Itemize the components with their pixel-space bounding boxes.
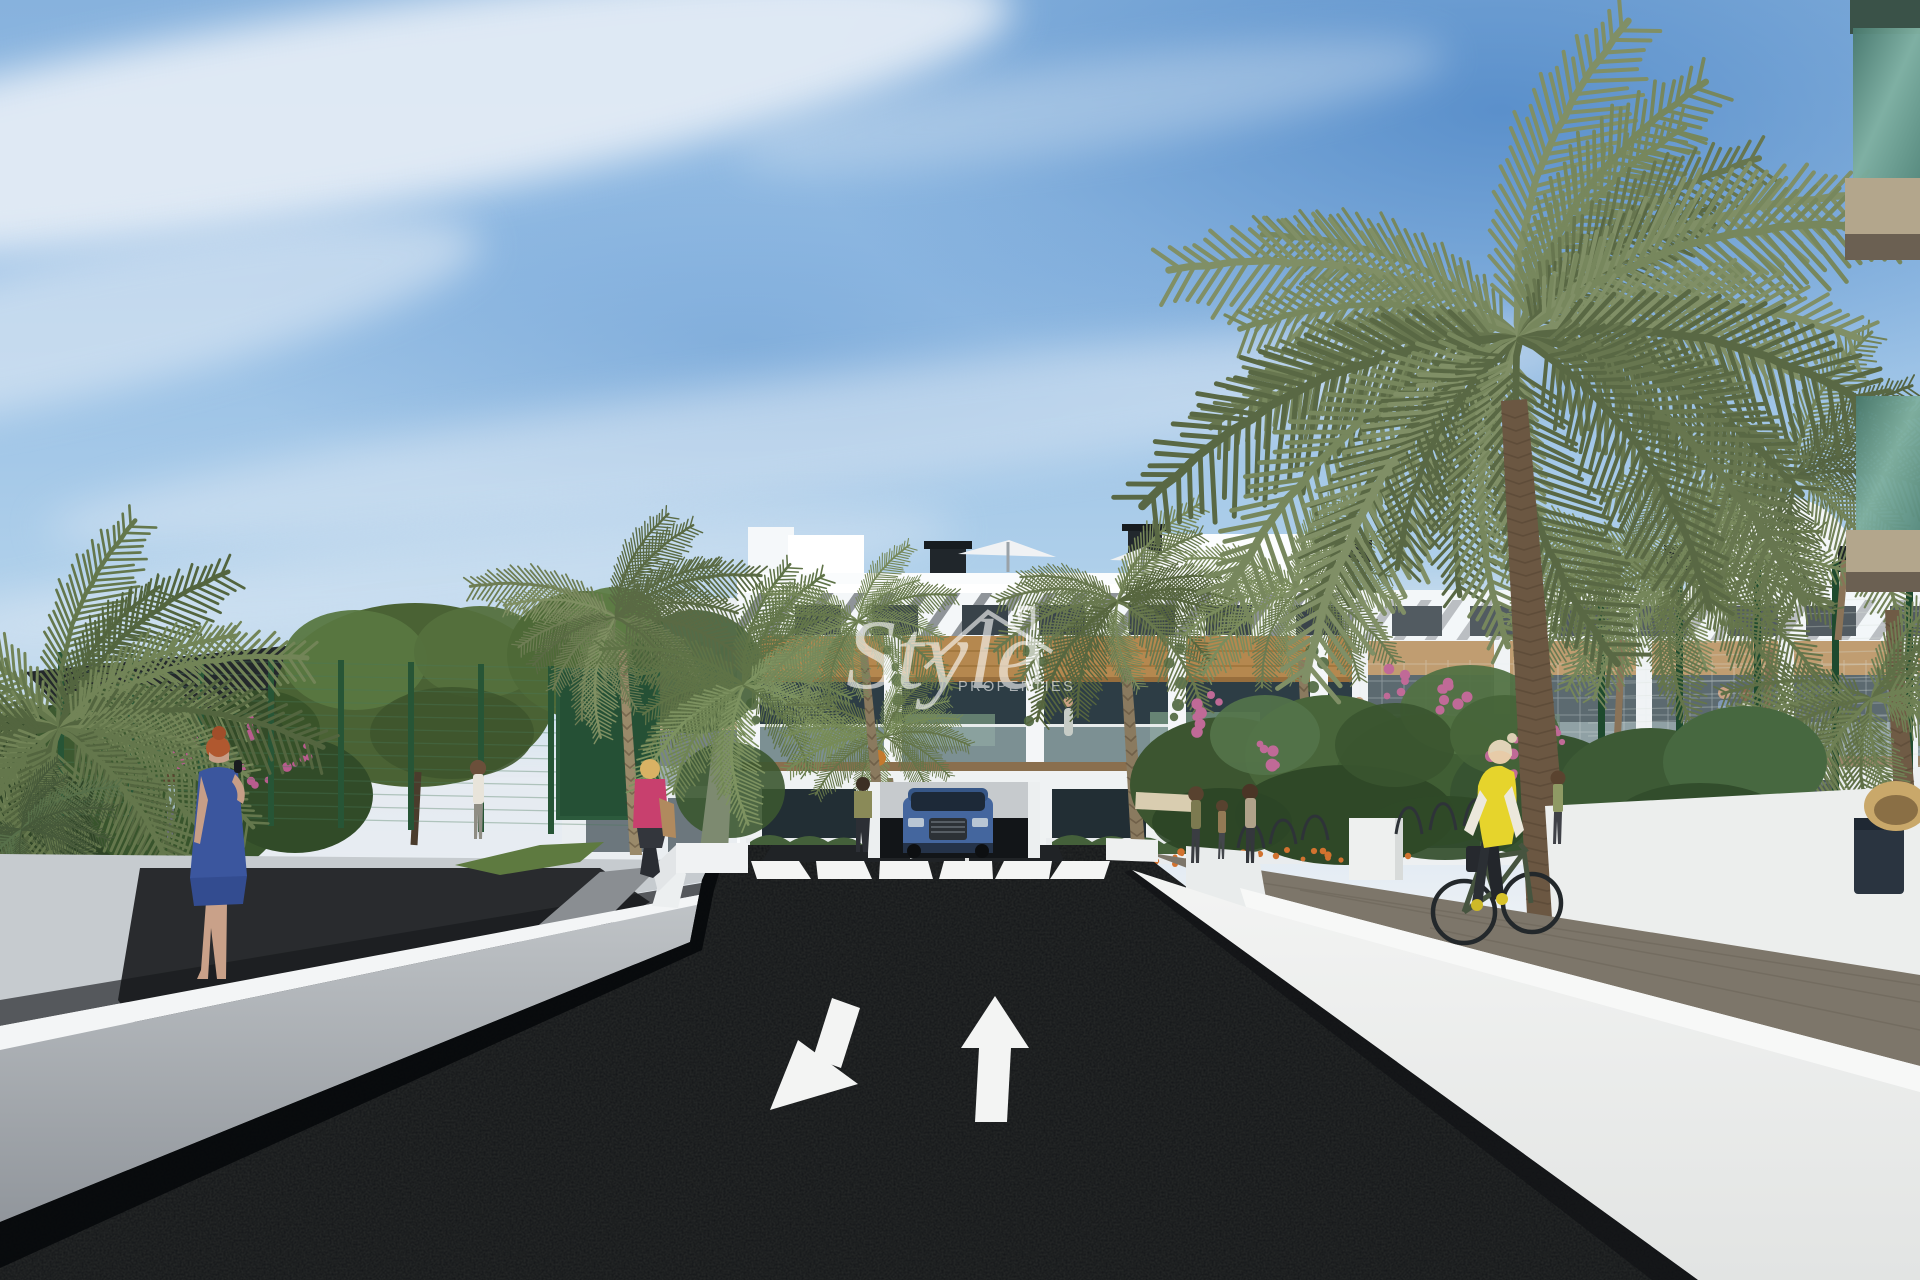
svg-text:PROPERTIES: PROPERTIES bbox=[958, 679, 1075, 695]
